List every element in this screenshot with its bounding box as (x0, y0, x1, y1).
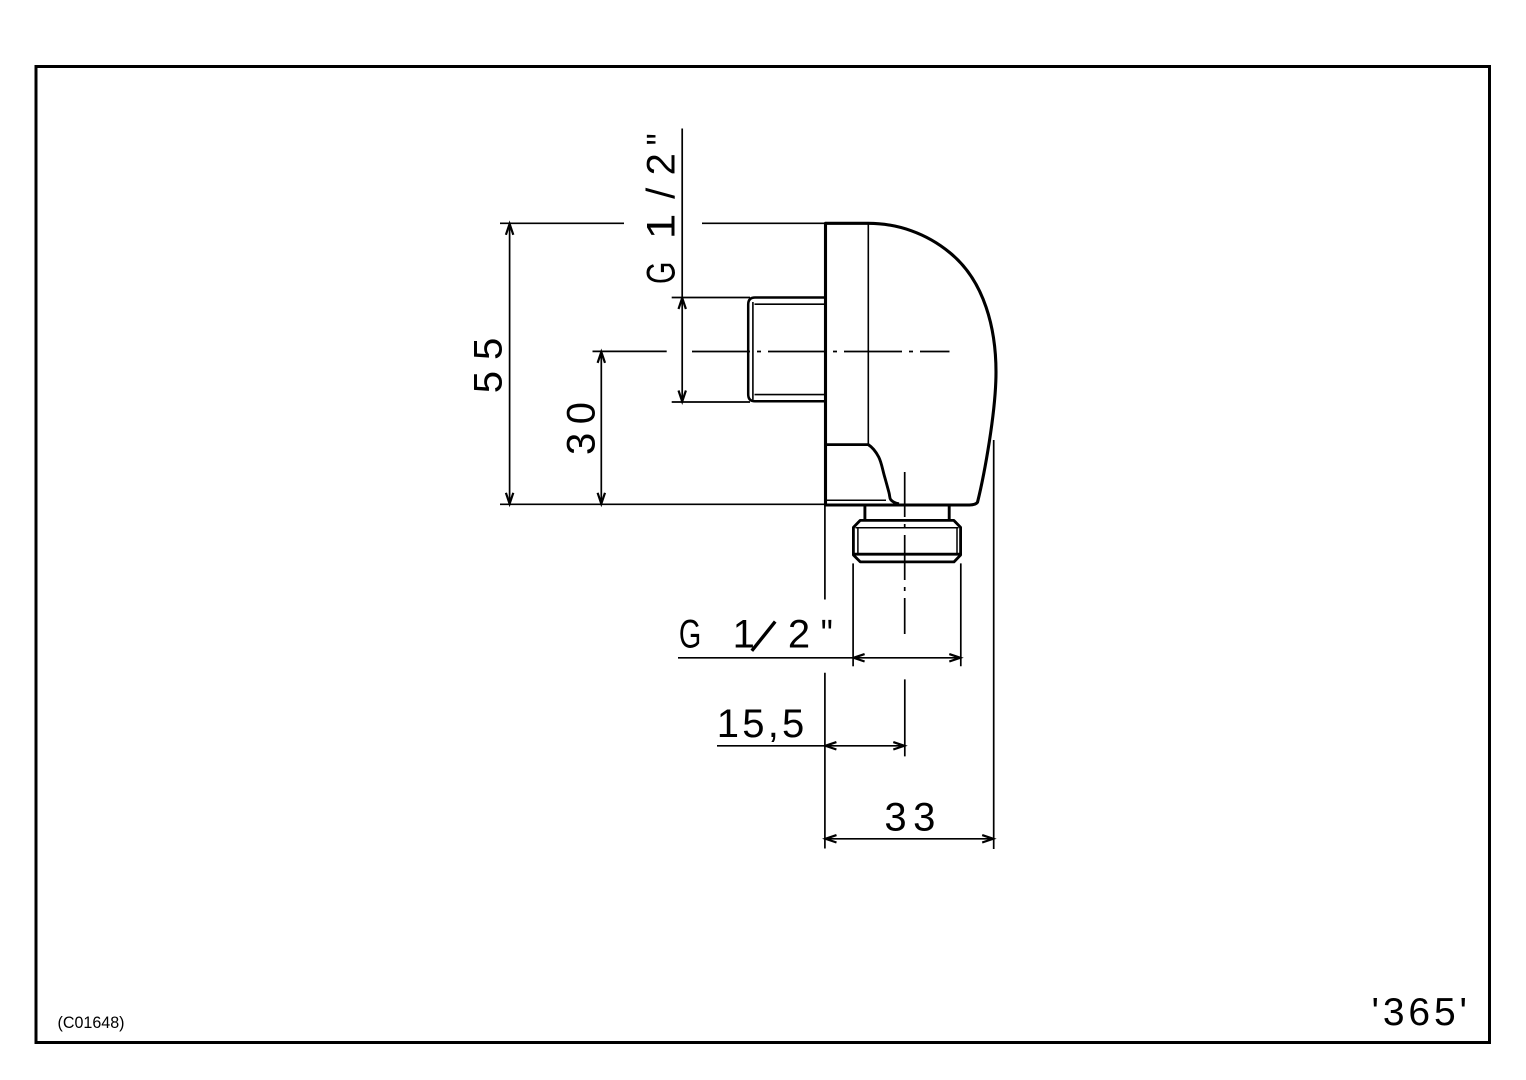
svg-text:55: 55 (467, 338, 511, 394)
svg-text:G: G (639, 262, 684, 284)
svg-text:": " (821, 611, 833, 656)
svg-text:(C01648): (C01648) (58, 1013, 125, 1032)
svg-text:15,5: 15,5 (717, 702, 805, 746)
svg-text:": " (638, 133, 683, 145)
svg-text:33: 33 (884, 795, 935, 839)
svg-text:G: G (679, 612, 701, 657)
svg-text:2: 2 (788, 613, 810, 657)
svg-text:'365': '365' (1372, 991, 1468, 1034)
svg-text:1: 1 (639, 214, 684, 240)
svg-text:2: 2 (640, 153, 684, 175)
svg-text:/: / (640, 187, 684, 199)
svg-text:30: 30 (560, 402, 604, 455)
